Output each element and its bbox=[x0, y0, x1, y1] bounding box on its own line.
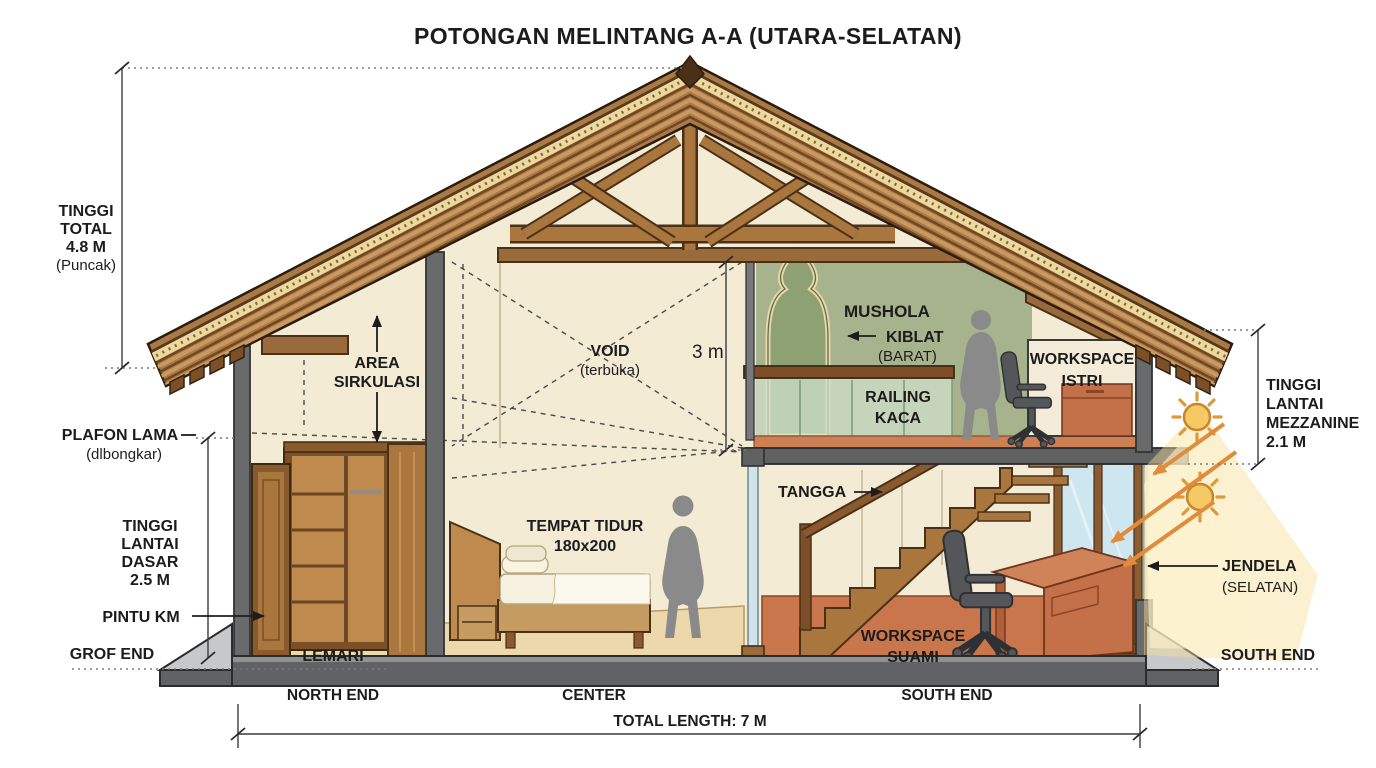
south-end-bottom-label: SOUTH END bbox=[901, 687, 992, 704]
tempat-tidur-label: 180x200 bbox=[554, 538, 616, 555]
tinggi-total-label: (Puncak) bbox=[56, 257, 116, 274]
plafon-lama-label: PLAFON LAMA bbox=[62, 427, 179, 444]
mushola-label: MUSHOLA bbox=[844, 302, 930, 321]
mezzanine-label: 2.1 M bbox=[1266, 434, 1306, 451]
workspace-istri-label: WORKSPACE bbox=[1030, 351, 1135, 368]
tinggi-dasar-label: LANTAI bbox=[121, 536, 178, 553]
tinggi-dasar-label: TINGGI bbox=[122, 518, 177, 535]
mezzanine-post bbox=[746, 248, 754, 440]
section-diagram: POTONGAN MELINTANG A-A (UTARA-SELATAN) T… bbox=[0, 0, 1376, 768]
tinggi-dasar-label: 2.5 M bbox=[130, 572, 170, 589]
tinggi-total-label: TOTAL bbox=[60, 221, 112, 238]
void-beam bbox=[498, 248, 974, 262]
mezzanine-label: TINGGI bbox=[1266, 377, 1321, 394]
desk-istri bbox=[1062, 384, 1132, 436]
tinggi-total-label: 4.8 M bbox=[66, 239, 106, 256]
railing-kaca-label: RAILING bbox=[865, 389, 931, 406]
jendela-label: (SELATAN) bbox=[1222, 579, 1298, 596]
plafon-lama-label: (dlbongkar) bbox=[86, 446, 162, 463]
partition-wall bbox=[426, 252, 444, 662]
mezzanine-label: MEZZANINE bbox=[1266, 415, 1360, 432]
kiblat-label: KIBLAT bbox=[886, 329, 944, 346]
diagram-title: POTONGAN MELINTANG A-A (UTARA-SELATAN) bbox=[414, 23, 962, 49]
total-length-label: TOTAL LENGTH: 7 M bbox=[613, 713, 766, 730]
void-height-label: 3 m bbox=[692, 342, 724, 363]
area-sirkulasi-label: SIRKULASI bbox=[334, 374, 420, 391]
tinggi-dasar-label: DASAR bbox=[122, 554, 179, 571]
workspace-istri-label: ISTRI bbox=[1062, 373, 1103, 390]
kiblat-label: (BARAT) bbox=[878, 348, 937, 365]
center-label: CENTER bbox=[562, 687, 626, 704]
void-label: VOID bbox=[590, 343, 629, 360]
section-drawing: POTONGAN MELINTANG A-A (UTARA-SELATAN) T… bbox=[0, 0, 1376, 768]
north-end-label: NORTH END bbox=[287, 687, 379, 704]
tinggi-total-label: TINGGI bbox=[58, 203, 113, 220]
mezzanine-floor bbox=[754, 436, 1136, 449]
lemari-label: LEMARI bbox=[302, 648, 363, 665]
south-end-right-label: SOUTH END bbox=[1221, 647, 1315, 664]
railing-kaca-label: KACA bbox=[875, 410, 922, 427]
tempat-tidur-label: TEMPAT TIDUR bbox=[527, 518, 644, 535]
bathroom-door bbox=[252, 464, 290, 656]
pintu-km-label: PINTU KM bbox=[102, 609, 179, 626]
tangga-label: TANGGA bbox=[778, 484, 847, 501]
north-wall bbox=[234, 346, 250, 662]
grof-end-label: GROF END bbox=[70, 646, 154, 663]
area-sirkulasi-label: AREA bbox=[354, 355, 400, 372]
workspace-suami-label: WORKSPACE bbox=[861, 628, 966, 645]
mezzanine-label: LANTAI bbox=[1266, 396, 1323, 413]
sun-icon bbox=[1173, 393, 1221, 441]
wardrobe-lemari bbox=[284, 442, 428, 660]
wall-plate bbox=[262, 336, 348, 354]
workspace-suami-label: SUAMI bbox=[887, 649, 939, 666]
void-label: (terbuka) bbox=[580, 362, 640, 379]
jendela-label: JENDELA bbox=[1222, 558, 1297, 575]
mezzanine-slab bbox=[746, 448, 1188, 464]
